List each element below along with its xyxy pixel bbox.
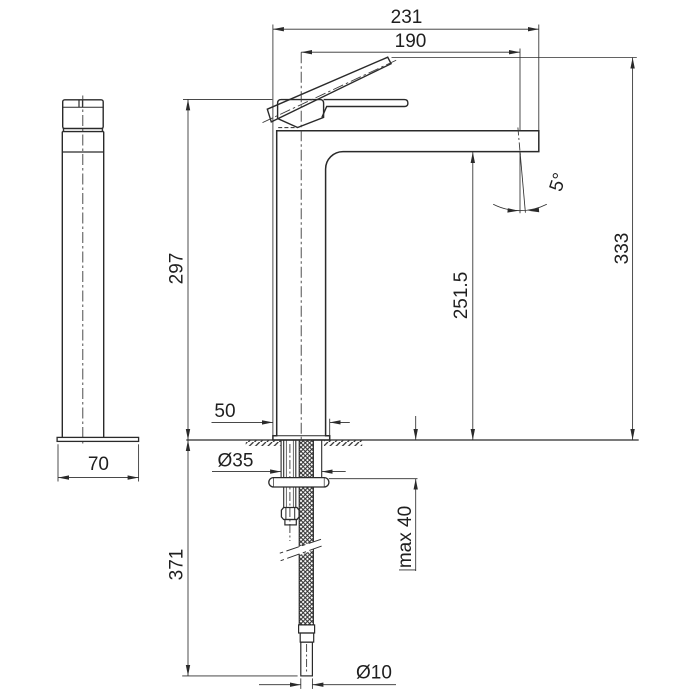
svg-text:371: 371	[167, 549, 188, 581]
svg-text:Ø35: Ø35	[218, 451, 254, 472]
svg-text:297: 297	[167, 253, 188, 285]
svg-text:50: 50	[214, 401, 235, 422]
svg-text:333: 333	[612, 233, 633, 265]
svg-text:max 40: max 40	[395, 506, 416, 568]
svg-text:231: 231	[391, 7, 423, 28]
svg-text:251.5: 251.5	[451, 272, 472, 320]
svg-text:Ø10: Ø10	[356, 662, 392, 683]
svg-text:190: 190	[395, 31, 427, 52]
svg-text:70: 70	[88, 454, 109, 475]
